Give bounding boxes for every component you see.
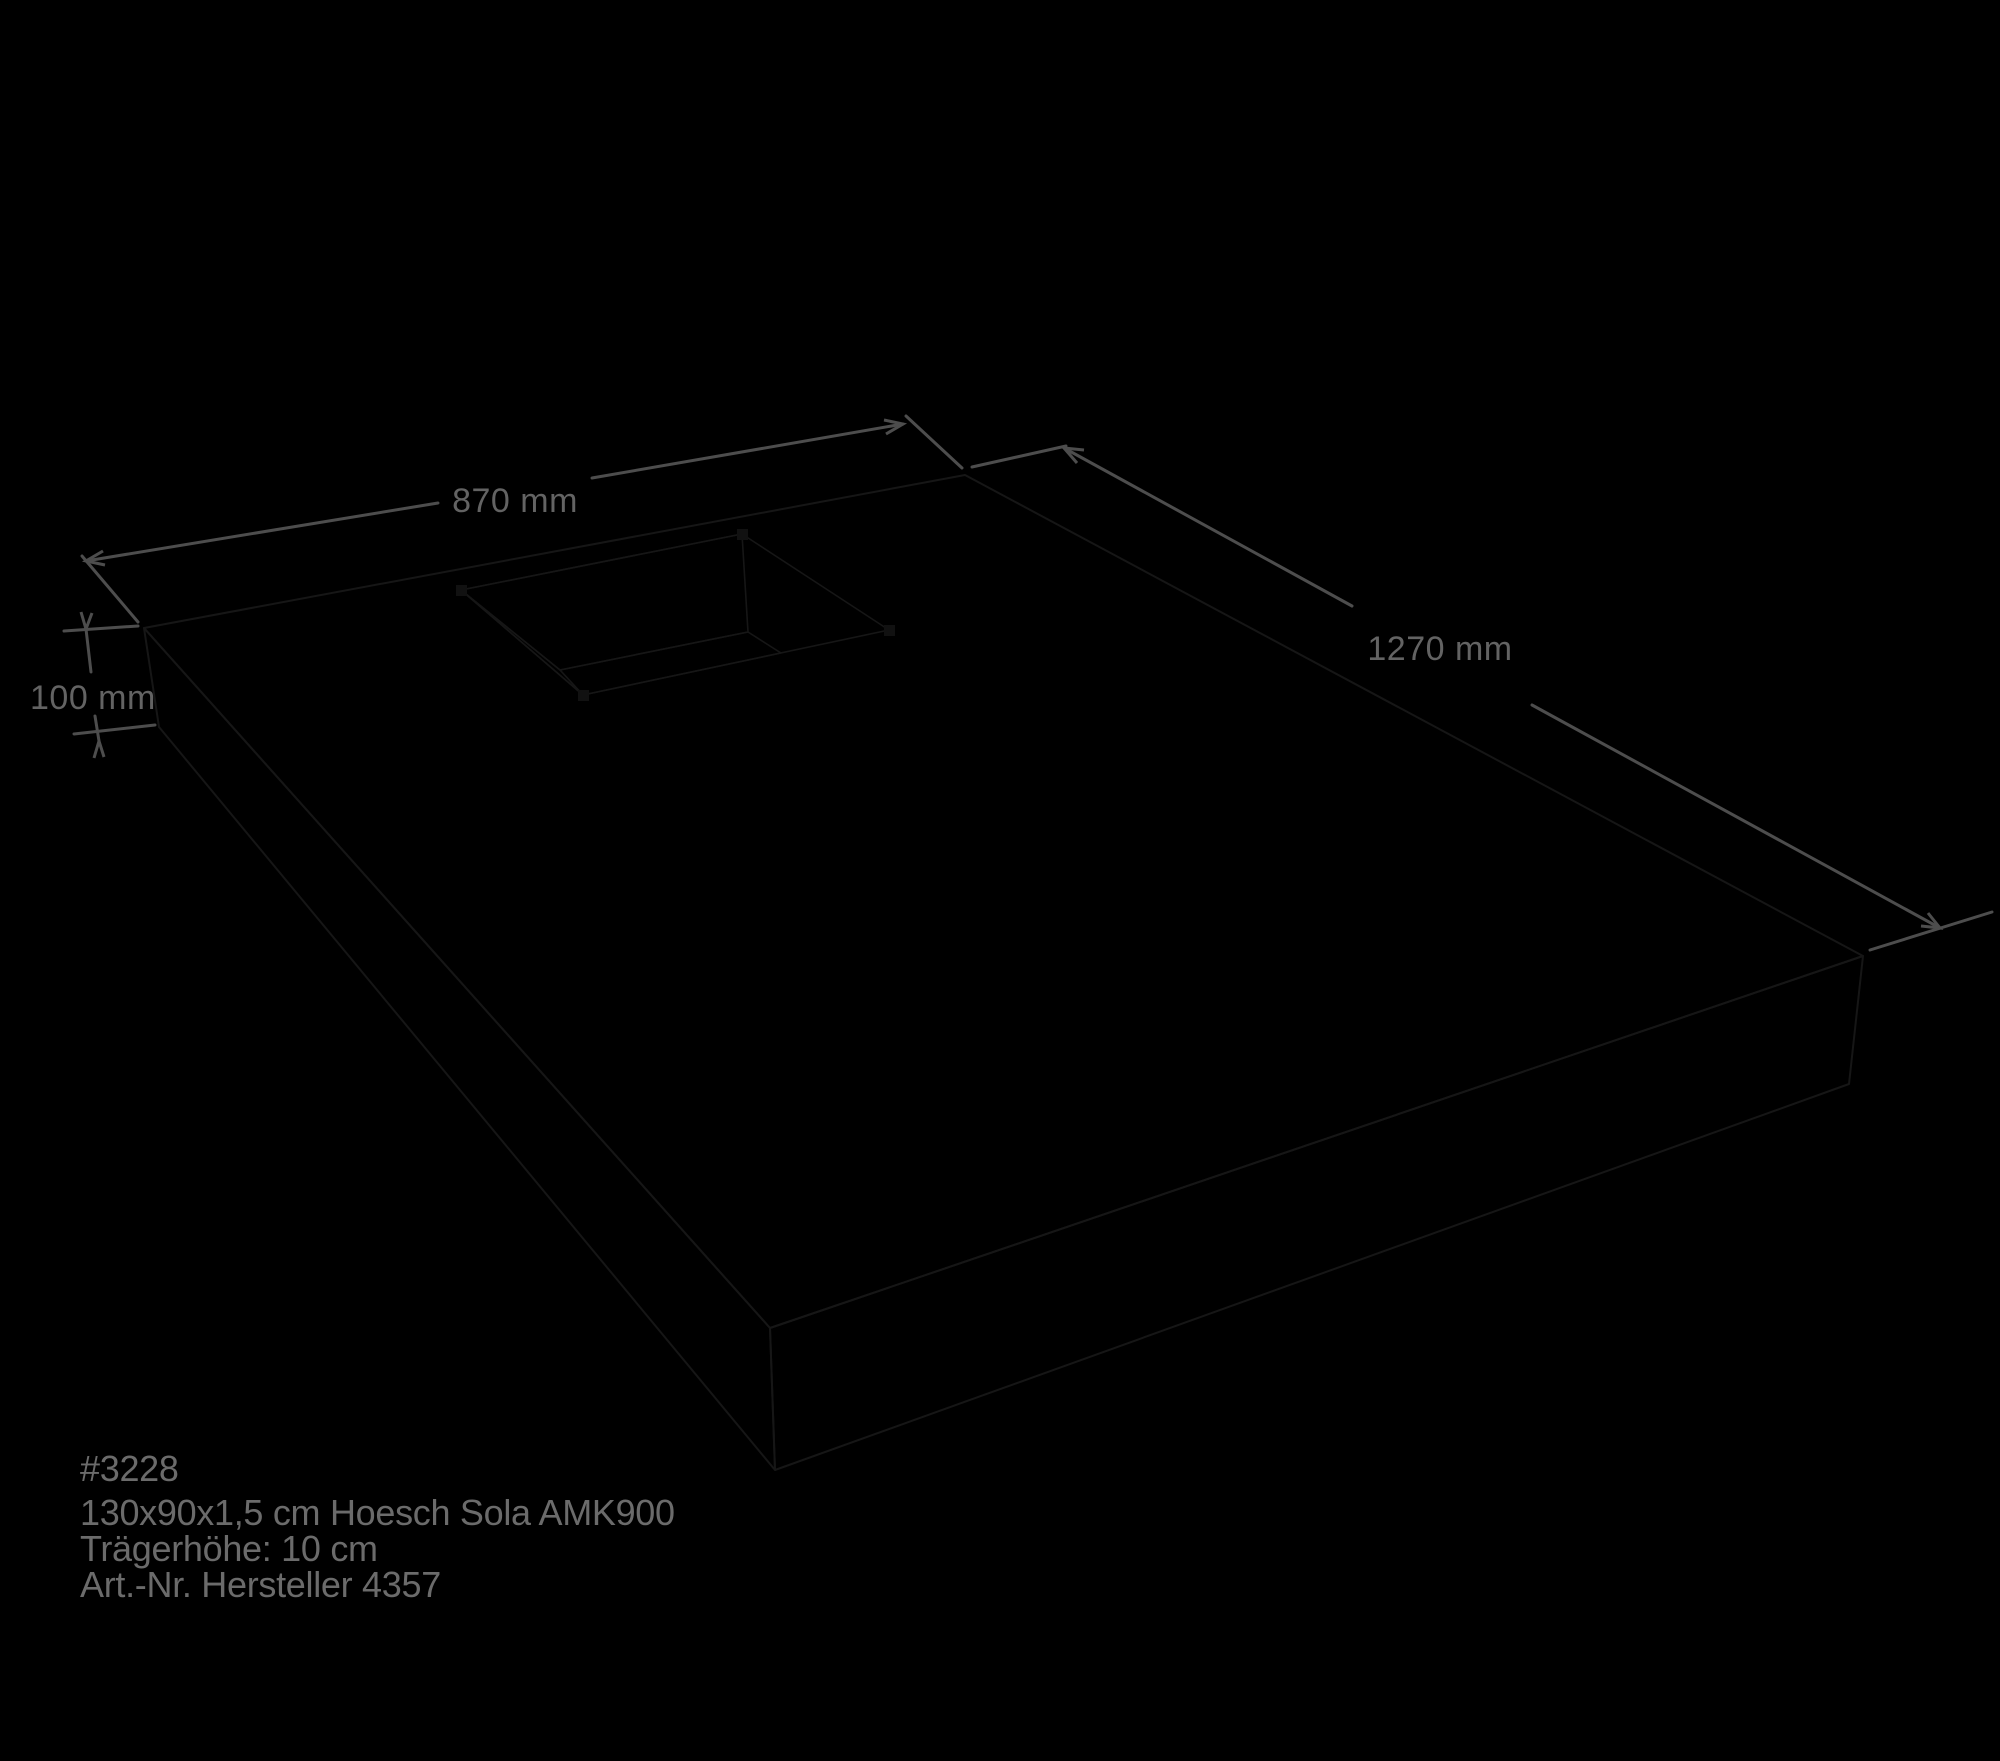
cutout-far-wall — [461, 534, 748, 670]
height-arrowhead-top — [81, 612, 92, 629]
height-dimension-label: 100 mm — [30, 679, 156, 717]
height-dimension-line-b — [95, 716, 99, 741]
corner-marker — [737, 529, 748, 540]
drawing-canvas: 870 mm 1270 mm 100 mm #3228 130x90x1,5 c… — [0, 0, 2000, 1761]
product-id-text: #3228 — [80, 1448, 179, 1489]
width-extension-line-left — [82, 556, 138, 622]
slab-front-left-face — [144, 628, 775, 1470]
width-dimension-line-a — [86, 503, 438, 561]
shower-tray-support-drawing: 870 mm 1270 mm 100 mm #3228 130x90x1,5 c… — [0, 0, 2000, 1761]
slab-body — [144, 475, 1863, 1470]
cutout-floor — [560, 632, 781, 695]
length-dimension-line-b — [1532, 705, 1940, 928]
height-extension-line-bottom — [74, 725, 155, 734]
height-arrowhead-bottom — [94, 741, 104, 758]
width-dimension-label: 870 mm — [452, 482, 578, 520]
length-extension-line-top — [972, 446, 1066, 467]
length-arrowhead-top — [1064, 448, 1084, 463]
width-extension-line-right — [906, 416, 962, 468]
slab-top-face — [144, 475, 1863, 1328]
height-extension-line-top — [64, 626, 138, 631]
carrier-height-text: Trägerhöhe: 10 cm — [80, 1528, 378, 1569]
length-dimension-label: 1270 mm — [1367, 630, 1512, 668]
slab-front-right-face — [770, 956, 1863, 1470]
corner-marker — [884, 625, 895, 636]
length-dimension-line-a — [1064, 448, 1352, 606]
manufacturer-article-number-text: Art.-Nr. Hersteller 4357 — [80, 1564, 441, 1605]
height-dimension-line-a — [86, 629, 91, 672]
drain-cutout — [456, 529, 895, 701]
corner-marker — [456, 585, 467, 596]
cutout-rim-outline — [461, 534, 889, 695]
product-description-text: 130x90x1,5 cm Hoesch Sola AMK900 — [80, 1492, 675, 1533]
product-info-block: #3228 130x90x1,5 cm Hoesch Sola AMK900 T… — [80, 1448, 675, 1605]
width-dimension-line-b — [592, 424, 903, 478]
corner-marker — [578, 690, 589, 701]
dimension-length: 1270 mm — [972, 446, 1992, 950]
dimension-height: 100 mm — [30, 612, 156, 758]
